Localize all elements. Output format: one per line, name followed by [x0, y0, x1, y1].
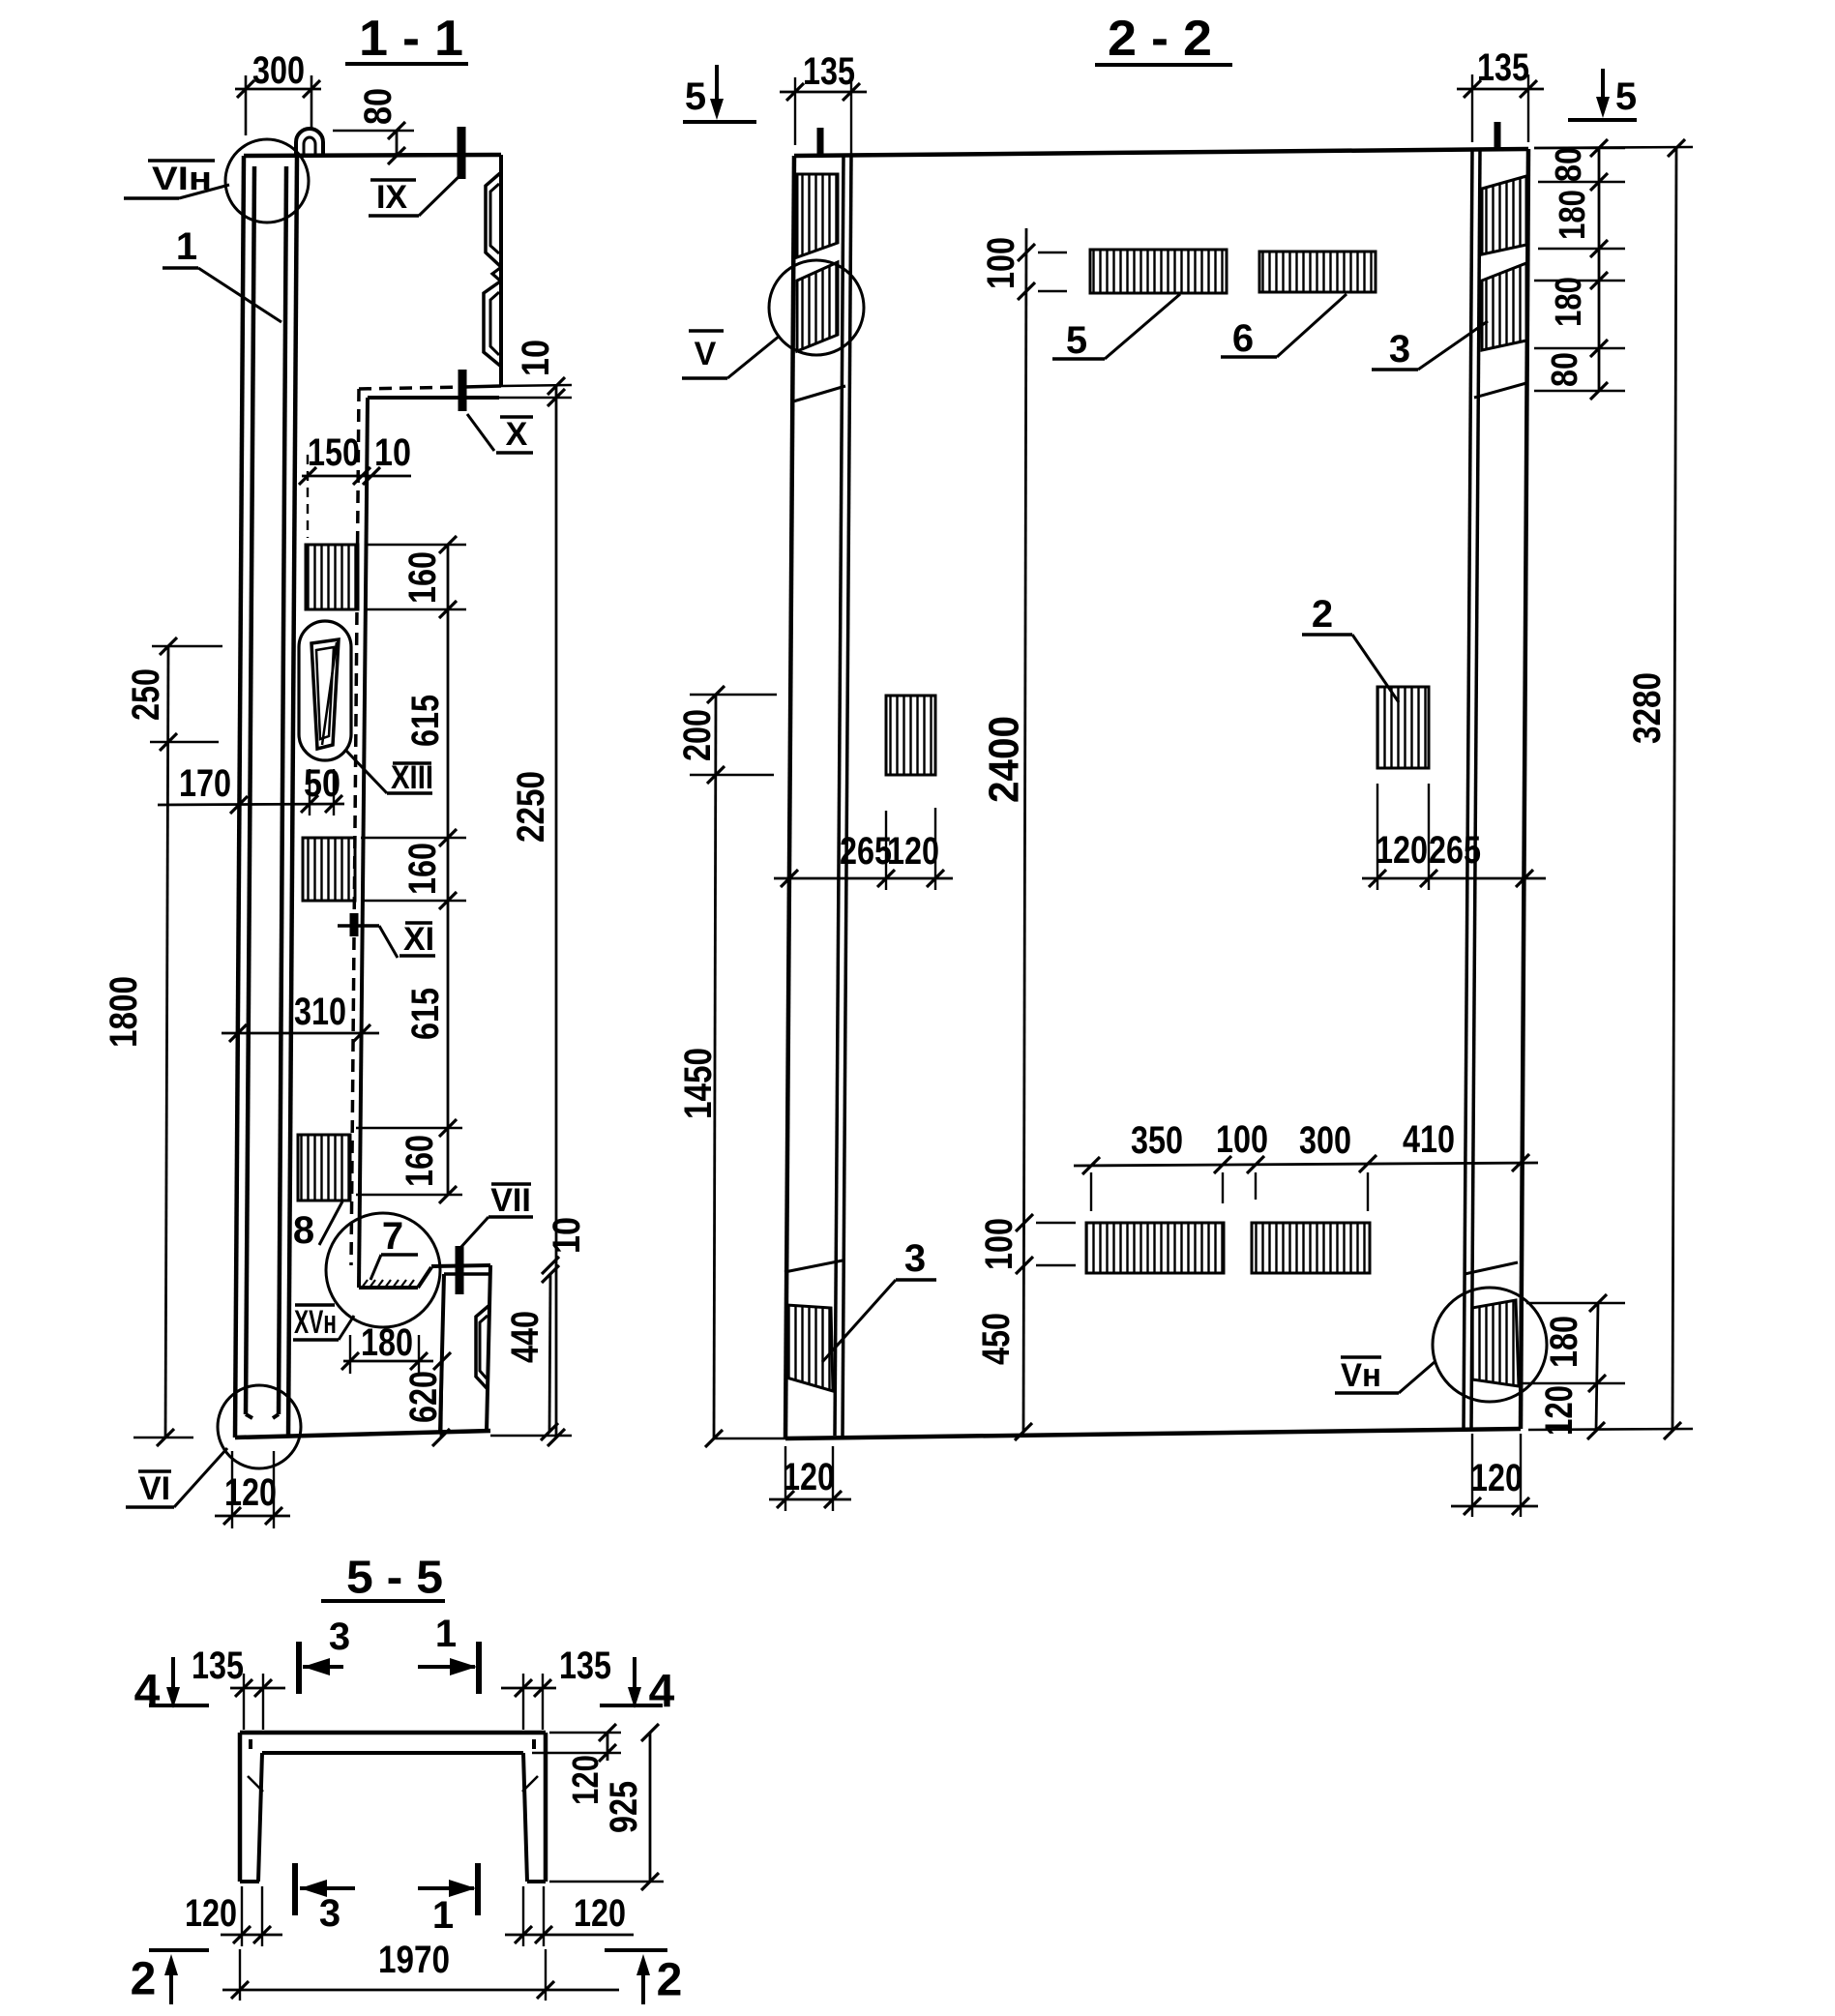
svg-text:2250: 2250 — [510, 771, 552, 843]
svg-text:1: 1 — [176, 225, 197, 268]
svg-text:IX: IX — [376, 179, 407, 216]
svg-text:450: 450 — [975, 1313, 1018, 1365]
svg-text:2: 2 — [1312, 593, 1333, 636]
svg-text:180: 180 — [1549, 277, 1589, 327]
svg-text:120: 120 — [1538, 1385, 1581, 1436]
svg-text:VI: VI — [139, 1470, 170, 1507]
svg-text:200: 200 — [676, 709, 719, 761]
svg-text:2400: 2400 — [981, 716, 1028, 803]
svg-text:3: 3 — [319, 1892, 340, 1935]
svg-text:50: 50 — [304, 762, 340, 805]
svg-text:1450: 1450 — [677, 1048, 720, 1119]
svg-text:3: 3 — [329, 1616, 350, 1658]
svg-text:180: 180 — [361, 1321, 413, 1364]
svg-text:4: 4 — [649, 1667, 675, 1718]
svg-text:1: 1 — [435, 1613, 457, 1655]
svg-text:1 - 1: 1 - 1 — [359, 11, 463, 67]
svg-text:180: 180 — [1553, 190, 1593, 240]
svg-text:120: 120 — [224, 1471, 277, 1514]
svg-text:615: 615 — [404, 695, 447, 747]
svg-text:XIII: XIII — [391, 759, 433, 796]
svg-text:1800: 1800 — [103, 976, 145, 1048]
svg-text:1970: 1970 — [378, 1939, 450, 1981]
svg-text:8: 8 — [293, 1209, 314, 1252]
svg-text:160: 160 — [401, 843, 444, 895]
svg-text:100: 100 — [1216, 1118, 1268, 1161]
svg-text:160: 160 — [399, 1135, 441, 1187]
svg-text:10: 10 — [374, 431, 411, 474]
svg-text:6: 6 — [1232, 317, 1254, 360]
svg-text:150: 150 — [308, 431, 360, 474]
svg-text:160: 160 — [401, 551, 444, 604]
svg-text:170: 170 — [179, 762, 231, 805]
svg-text:120: 120 — [783, 1456, 835, 1498]
svg-text:80: 80 — [1549, 147, 1589, 182]
svg-text:XVн: XVн — [294, 1304, 337, 1341]
svg-text:100: 100 — [980, 237, 1022, 289]
svg-text:3: 3 — [904, 1237, 926, 1280]
svg-text:135: 135 — [192, 1645, 244, 1687]
svg-text:3: 3 — [1389, 328, 1410, 371]
svg-text:5 - 5: 5 - 5 — [346, 1553, 443, 1604]
svg-text:XI: XI — [403, 921, 434, 958]
svg-text:Vн: Vн — [1341, 1357, 1381, 1394]
svg-text:5: 5 — [1066, 319, 1087, 362]
svg-text:120: 120 — [887, 830, 939, 873]
svg-text:X: X — [506, 416, 528, 453]
svg-text:120: 120 — [1376, 829, 1428, 872]
svg-text:410: 410 — [1403, 1118, 1455, 1161]
svg-text:120: 120 — [185, 1892, 237, 1935]
svg-text:V: V — [695, 336, 717, 372]
svg-text:10: 10 — [546, 1217, 588, 1254]
svg-text:620: 620 — [402, 1371, 445, 1423]
svg-text:2 - 2: 2 - 2 — [1108, 11, 1212, 67]
svg-text:265: 265 — [840, 830, 892, 873]
svg-text:300: 300 — [1299, 1119, 1351, 1162]
svg-text:2: 2 — [131, 1954, 157, 2005]
svg-text:925: 925 — [603, 1781, 645, 1833]
svg-text:100: 100 — [978, 1218, 1021, 1270]
svg-text:120: 120 — [574, 1892, 626, 1935]
svg-text:135: 135 — [559, 1645, 611, 1687]
svg-text:250: 250 — [125, 668, 167, 721]
svg-text:615: 615 — [404, 988, 447, 1040]
svg-text:2: 2 — [657, 1955, 683, 2006]
svg-text:1: 1 — [432, 1894, 454, 1937]
svg-text:440: 440 — [504, 1311, 547, 1363]
svg-text:350: 350 — [1131, 1119, 1183, 1162]
svg-text:80: 80 — [357, 88, 400, 125]
svg-text:135: 135 — [1477, 46, 1529, 89]
svg-text:80: 80 — [1545, 352, 1585, 387]
svg-text:3280: 3280 — [1626, 672, 1669, 744]
svg-text:180: 180 — [1543, 1316, 1585, 1368]
svg-text:120: 120 — [1470, 1457, 1523, 1499]
svg-text:5: 5 — [1615, 75, 1637, 118]
svg-text:5: 5 — [685, 75, 706, 118]
svg-text:135: 135 — [803, 50, 855, 93]
svg-text:7: 7 — [382, 1215, 403, 1258]
svg-text:265: 265 — [1429, 829, 1481, 872]
svg-text:310: 310 — [294, 991, 346, 1033]
svg-text:300: 300 — [252, 49, 305, 92]
svg-text:10: 10 — [515, 340, 557, 376]
svg-text:VII: VII — [490, 1182, 531, 1219]
svg-text:120: 120 — [566, 1755, 607, 1805]
svg-text:4: 4 — [134, 1667, 161, 1718]
